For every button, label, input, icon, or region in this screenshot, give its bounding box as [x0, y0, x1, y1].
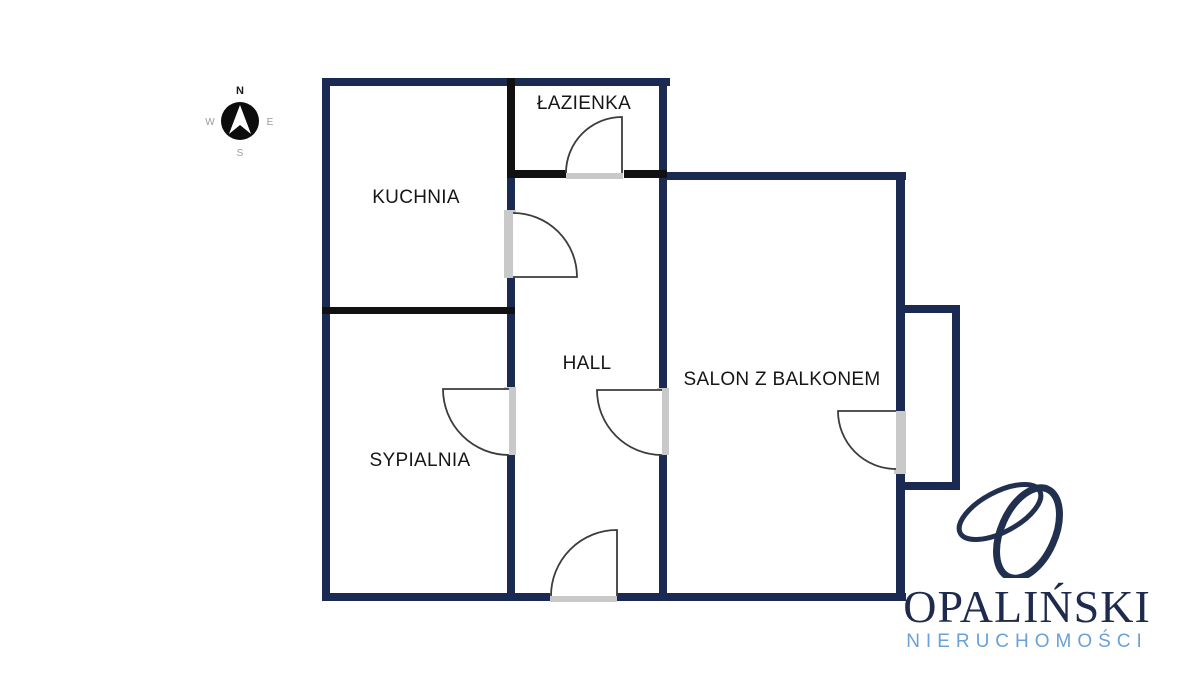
- room-label-hall: HALL: [563, 353, 612, 375]
- door-arc-entrance: [551, 530, 617, 596]
- wall-bathroom-south-west: [507, 170, 567, 178]
- compass-letter-n: N: [236, 85, 244, 97]
- door-arc-bathroom: [566, 117, 622, 173]
- wall-living-room-north: [659, 172, 906, 180]
- wall-hall-east-lower: [659, 455, 667, 601]
- room-label-kitchen: KUCHNIA: [372, 187, 460, 209]
- brand-monogram-o-icon: [880, 470, 1174, 578]
- brand-tagline: NIERUCHOMOŚCI: [880, 631, 1174, 653]
- wall-living-room-east-upper: [896, 172, 905, 411]
- compass-letter-s: S: [237, 148, 244, 159]
- wall-hall-east-upper: [659, 78, 667, 388]
- door-sill-bathroom: [566, 169, 623, 179]
- door-sill-bedroom: [504, 387, 516, 455]
- compass-letter-w: W: [205, 117, 215, 128]
- door-sill-balcony: [894, 411, 906, 474]
- wall-outer-top: [322, 78, 670, 86]
- room-label-bedroom: SYPIALNIA: [370, 450, 471, 472]
- brand-company-name: OPALIŃSKI: [880, 580, 1174, 633]
- door-arc-kitchen: [513, 213, 577, 277]
- wall-bathroom-west: [507, 78, 515, 178]
- wall-hall-west-lower: [507, 455, 515, 601]
- wall-bathroom-south-east: [624, 170, 667, 178]
- door-arc-living-room: [597, 390, 662, 455]
- floorplan-canvas: ŁAZIENKA KUCHNIA HALL SYPIALNIA SALON Z …: [0, 0, 1200, 684]
- wall-outer-left: [322, 78, 330, 601]
- room-label-living-room: SALON Z BALKONEM: [684, 369, 881, 391]
- wall-outer-bottom-west: [322, 593, 550, 601]
- door-arc-balcony: [838, 411, 896, 469]
- door-sill-entrance: [550, 593, 617, 602]
- wall-hall-west-upper: [507, 178, 515, 210]
- door-sill-living-room: [657, 388, 669, 455]
- door-sill-kitchen: [504, 210, 516, 278]
- compass-letter-e: E: [267, 117, 274, 128]
- compass-rose-icon: N W E S: [195, 76, 285, 166]
- wall-kitchen-bedroom: [322, 307, 515, 314]
- wall-balcony-east: [952, 305, 960, 490]
- wall-hall-west-middle: [507, 278, 515, 387]
- door-arc-bedroom: [443, 389, 509, 455]
- room-label-bathroom: ŁAZIENKA: [537, 93, 631, 115]
